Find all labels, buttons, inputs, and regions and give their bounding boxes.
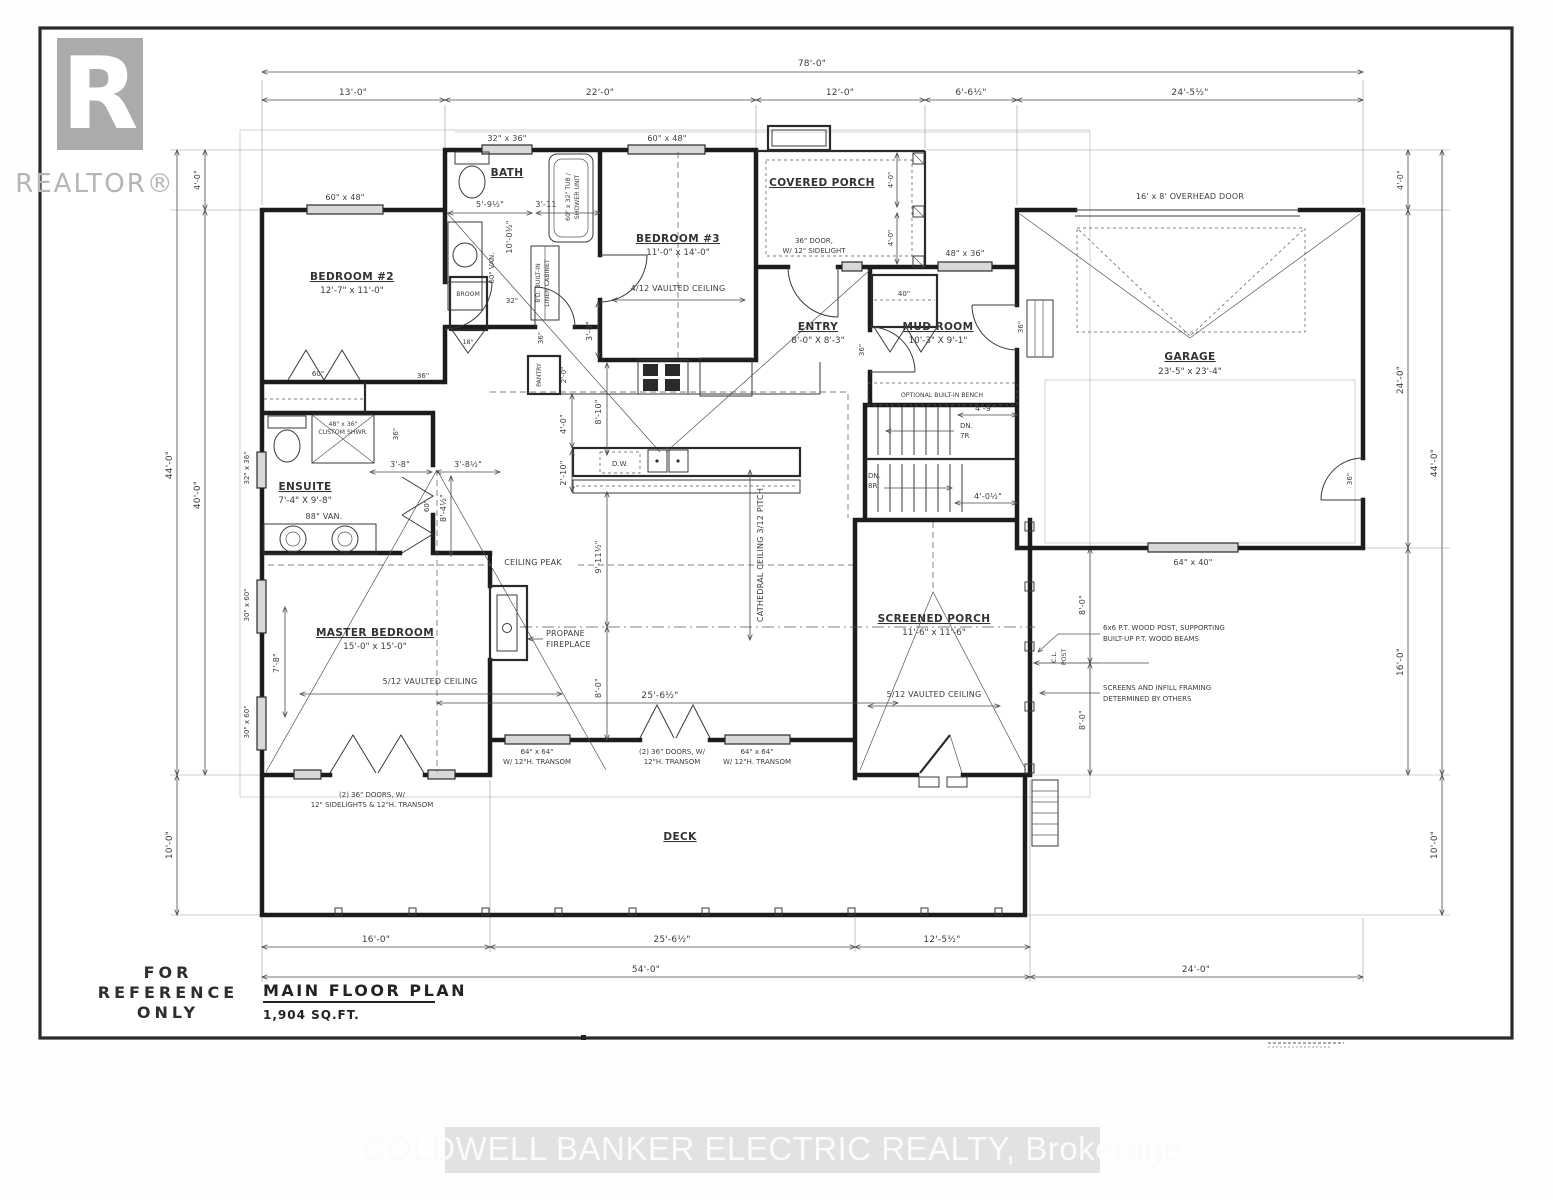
- label-post-note-1: 6x6 P.T. WOOD POST, SUPPORTING: [1103, 624, 1225, 632]
- dim-right-16: 16'-0": [1396, 648, 1406, 676]
- dim-8-10: 8'-10": [594, 399, 603, 424]
- stamp-line-3: ONLY: [137, 1003, 199, 1022]
- dim-top-3: 12'-0": [826, 88, 854, 98]
- dim-3-8-vert: 3'-8": [585, 321, 594, 341]
- dim-3-8h: 3'-8½": [454, 460, 482, 469]
- label-win-30x60-b: 30" x 60": [243, 706, 251, 739]
- label-dn7-a: DN.: [960, 422, 973, 430]
- label-fireplace-2: FIREPLACE: [546, 640, 591, 649]
- label-cl-2: POST: [1061, 649, 1068, 666]
- label-pantry: PANTRY: [536, 363, 543, 387]
- label-tub-1: 60" x 32" TUB /: [565, 172, 572, 221]
- plan-title: MAIN FLOOR PLAN: [263, 981, 467, 1000]
- dim-bath-3: 10'-0½": [505, 220, 514, 253]
- dim-top-5: 24'-5½": [1171, 88, 1208, 98]
- dim-bottom-16: 16'-0": [362, 935, 390, 945]
- dim-right-4: 4'-0": [1396, 170, 1405, 190]
- dim-bottom-54: 54'-0": [632, 965, 660, 975]
- label-fireplace-1: PROPANE: [546, 629, 585, 638]
- room-ensuite: ENSUITE: [278, 481, 331, 493]
- room-screened-porch-size: 11'-6" x 11'-6": [902, 628, 966, 638]
- dim-left-4: 4'-0": [193, 170, 202, 190]
- label-doors2-1: (2) 36" DOORS, W/: [639, 748, 706, 756]
- label-overhead-door: 16' x 8' OVERHEAD DOOR: [1136, 192, 1244, 201]
- dim-2-0: 2'-0": [560, 367, 568, 384]
- label-linen-2: LINEN CABINET: [544, 259, 551, 307]
- label-ceiling-peak: CEILING PEAK: [504, 558, 562, 567]
- label-shwr-1: 48" x 36": [328, 421, 357, 428]
- dim-porch-4a: 4'-0": [887, 172, 895, 189]
- master-ceiling: 5/12 VAULTED CEILING: [383, 677, 478, 686]
- label-doors2-2: 12"H. TRANSOM: [644, 758, 701, 766]
- label-van88: 88" VAN.: [306, 512, 343, 521]
- plan-title-underline: [263, 1001, 435, 1003]
- label-dn7-b: 7R: [960, 432, 969, 440]
- dim-bath-1: 5'-9½": [476, 200, 504, 209]
- stamp-line-1: FOR: [144, 963, 193, 982]
- dim-top-2: 22'-0": [586, 88, 614, 98]
- room-garage-size: 23'-5" x 23'-4": [1158, 367, 1222, 377]
- label-closet-60: 60": [312, 370, 324, 378]
- dim-7-8: 7'-8": [272, 653, 281, 673]
- label-win-64x40: 64" x 40": [1173, 558, 1212, 567]
- brokerage-watermark: COLDWELL BANKER ELECTRIC REALTY, Brokera…: [362, 1127, 1182, 1173]
- dim-36-d: 36": [1017, 321, 1025, 333]
- dim-36-c: 36": [417, 372, 429, 380]
- label-cathedral: CATHEDRAL CEILING 3/12 PITCH: [756, 488, 765, 622]
- room-deck: DECK: [663, 831, 697, 843]
- label-dn8-a: DN.: [868, 472, 881, 480]
- room-bath: BATH: [491, 167, 524, 179]
- realtor-logo-letter: R: [61, 35, 138, 152]
- label-broom: BROOM: [456, 291, 480, 298]
- room-entry: ENTRY: [798, 321, 838, 333]
- dim-bottom-24: 24'-0": [1182, 965, 1210, 975]
- stamp-line-2: REFERENCE: [98, 983, 238, 1002]
- label-stair-d1: 4'-9": [975, 404, 995, 413]
- label-entry-door-1: 36" DOOR,: [795, 237, 833, 245]
- label-screen-note-1: SCREENS AND INFILL FRAMING: [1103, 684, 1211, 692]
- room-covered-porch: COVERED PORCH: [769, 177, 875, 189]
- bedroom3-ceiling: 4/12 VAULTED CEILING: [631, 284, 726, 293]
- dim-4-0: 4'-0": [559, 414, 568, 434]
- label-screen-note-2: DETERMINED BY OTHERS: [1103, 695, 1192, 703]
- dim-porch-4b: 4'-0": [887, 230, 895, 247]
- floor-plan-sheet: R REALTOR® 78'-0" 13'-0" 22'-0" 12'-0" 6…: [0, 0, 1553, 1200]
- label-shwr-2: CUSTOM SHWR.: [318, 429, 368, 436]
- label-win-32x36: 32" x 36": [487, 134, 526, 143]
- label-win64-a1: 64" x 64": [521, 748, 554, 756]
- dim-bath-2: 3'-11: [535, 200, 556, 209]
- room-master: MASTER BEDROOM: [316, 627, 434, 639]
- dim-top-1: 13'-0": [339, 88, 367, 98]
- dim-36-f: 36": [1346, 473, 1354, 485]
- label-win-60x48-b: 60" x 48": [647, 134, 686, 143]
- label-win64-a2: W/ 12"H. TRANSOM: [503, 758, 571, 766]
- dim-top-4: 6'-6½": [955, 88, 986, 98]
- label-dn8-b: 8R: [868, 482, 877, 490]
- dim-left-44: 44'-0": [165, 451, 175, 479]
- label-entry-door-2: W/ 12" SIDELIGHT: [782, 247, 846, 255]
- dim-left-40: 40'-0": [193, 481, 203, 509]
- room-mud-room-size: 10'-3" X 9'-1": [909, 336, 968, 346]
- dim-8-4h: 8'-4½": [439, 494, 448, 522]
- floor-plan-drawing: R REALTOR® 78'-0" 13'-0" 22'-0" 12'-0" 6…: [0, 0, 1553, 1200]
- plan-area: 1,904 SQ.FT.: [263, 1008, 360, 1022]
- dim-porch-8a: 8'-0": [1078, 595, 1087, 615]
- room-bedroom3-size: 11'-0" x 14'-0": [646, 248, 710, 258]
- label-win-48x36: 48" x 36": [945, 249, 984, 258]
- label-18: 18": [463, 339, 474, 346]
- dim-overall-width: 78'-0": [798, 59, 826, 69]
- realtor-brand-text: REALTOR®: [15, 169, 175, 199]
- label-master-doors-1: (2) 36" DOORS, W/: [339, 791, 406, 799]
- dim-bottom-25: 25'-6½": [653, 935, 690, 945]
- dim-8-0: 8'-0": [594, 678, 603, 698]
- dim-bottom-12: 12'-5½": [923, 935, 960, 945]
- dim-right-24: 24'-0": [1396, 366, 1406, 394]
- label-dw: D.W.: [612, 460, 628, 468]
- watermark-text: COLDWELL BANKER ELECTRIC REALTY, Brokera…: [362, 1130, 1182, 1167]
- dim-right-44: 44'-0": [1430, 449, 1440, 477]
- room-entry-size: 8'-0" X 8'-3": [791, 336, 844, 346]
- label-closet-40: 40": [898, 290, 910, 298]
- label-win-30x60-a: 30" x 60": [243, 589, 251, 622]
- dim-left-10: 10'-0": [165, 831, 175, 859]
- room-bedroom2-size: 12'-7" x 11'-0": [320, 286, 384, 296]
- room-bedroom2: BEDROOM #2: [310, 271, 394, 283]
- label-bench: OPTIONAL BUILT-IN BENCH: [901, 392, 984, 399]
- label-post-note-2: BUILT-UP P.T. WOOD BEAMS: [1103, 635, 1200, 643]
- label-cl-1: C.L.: [1051, 651, 1058, 663]
- label-win-60x48-a: 60" x 48": [325, 193, 364, 202]
- illegible-stamp: [1268, 1043, 1344, 1047]
- label-win64-b2: W/ 12"H. TRANSOM: [723, 758, 791, 766]
- dim-porch-8b: 8'-0": [1078, 710, 1087, 730]
- room-screened-porch: SCREENED PORCH: [878, 613, 991, 625]
- dim-36-a: 36": [392, 428, 400, 440]
- dim-60: 60": [423, 500, 431, 512]
- label-master-doors-2: 12" SIDELIGHTS & 12"H. TRANSOM: [311, 801, 434, 809]
- label-stair-d2: 4'-0½": [974, 492, 1002, 501]
- room-garage: GARAGE: [1164, 351, 1215, 363]
- dim-25-6: 25'-6½": [641, 691, 678, 701]
- label-linen-1: 8'D. BUILT-IN: [535, 263, 542, 303]
- room-ensuite-size: 7'-4" X 9'-8": [278, 496, 331, 506]
- label-win-32x36-left: 32" x 36": [243, 452, 251, 485]
- room-mud-room: MUD ROOM: [903, 321, 974, 333]
- dim-9-11: 9'-11½": [594, 540, 603, 573]
- dim-36-e: 36": [858, 344, 866, 356]
- border-tick: [581, 1035, 586, 1040]
- label-tub-2: SHOWER UNIT: [574, 175, 581, 220]
- room-master-size: 15'-0" x 15'-0": [343, 642, 407, 652]
- dim-2-10: 2'-10": [559, 460, 568, 485]
- room-bedroom3: BEDROOM #3: [636, 233, 720, 245]
- dim-32: 32": [506, 297, 518, 305]
- dim-right-10: 10'-0": [1430, 831, 1440, 859]
- label-van60: 60" VAN.: [488, 253, 496, 284]
- label-win64-b1: 64" x 64": [741, 748, 774, 756]
- dim-36-b: 36": [537, 332, 545, 344]
- screened-porch-ceiling: 5/12 VAULTED CEILING: [887, 690, 982, 699]
- dim-3-8: 3'-8": [390, 460, 410, 469]
